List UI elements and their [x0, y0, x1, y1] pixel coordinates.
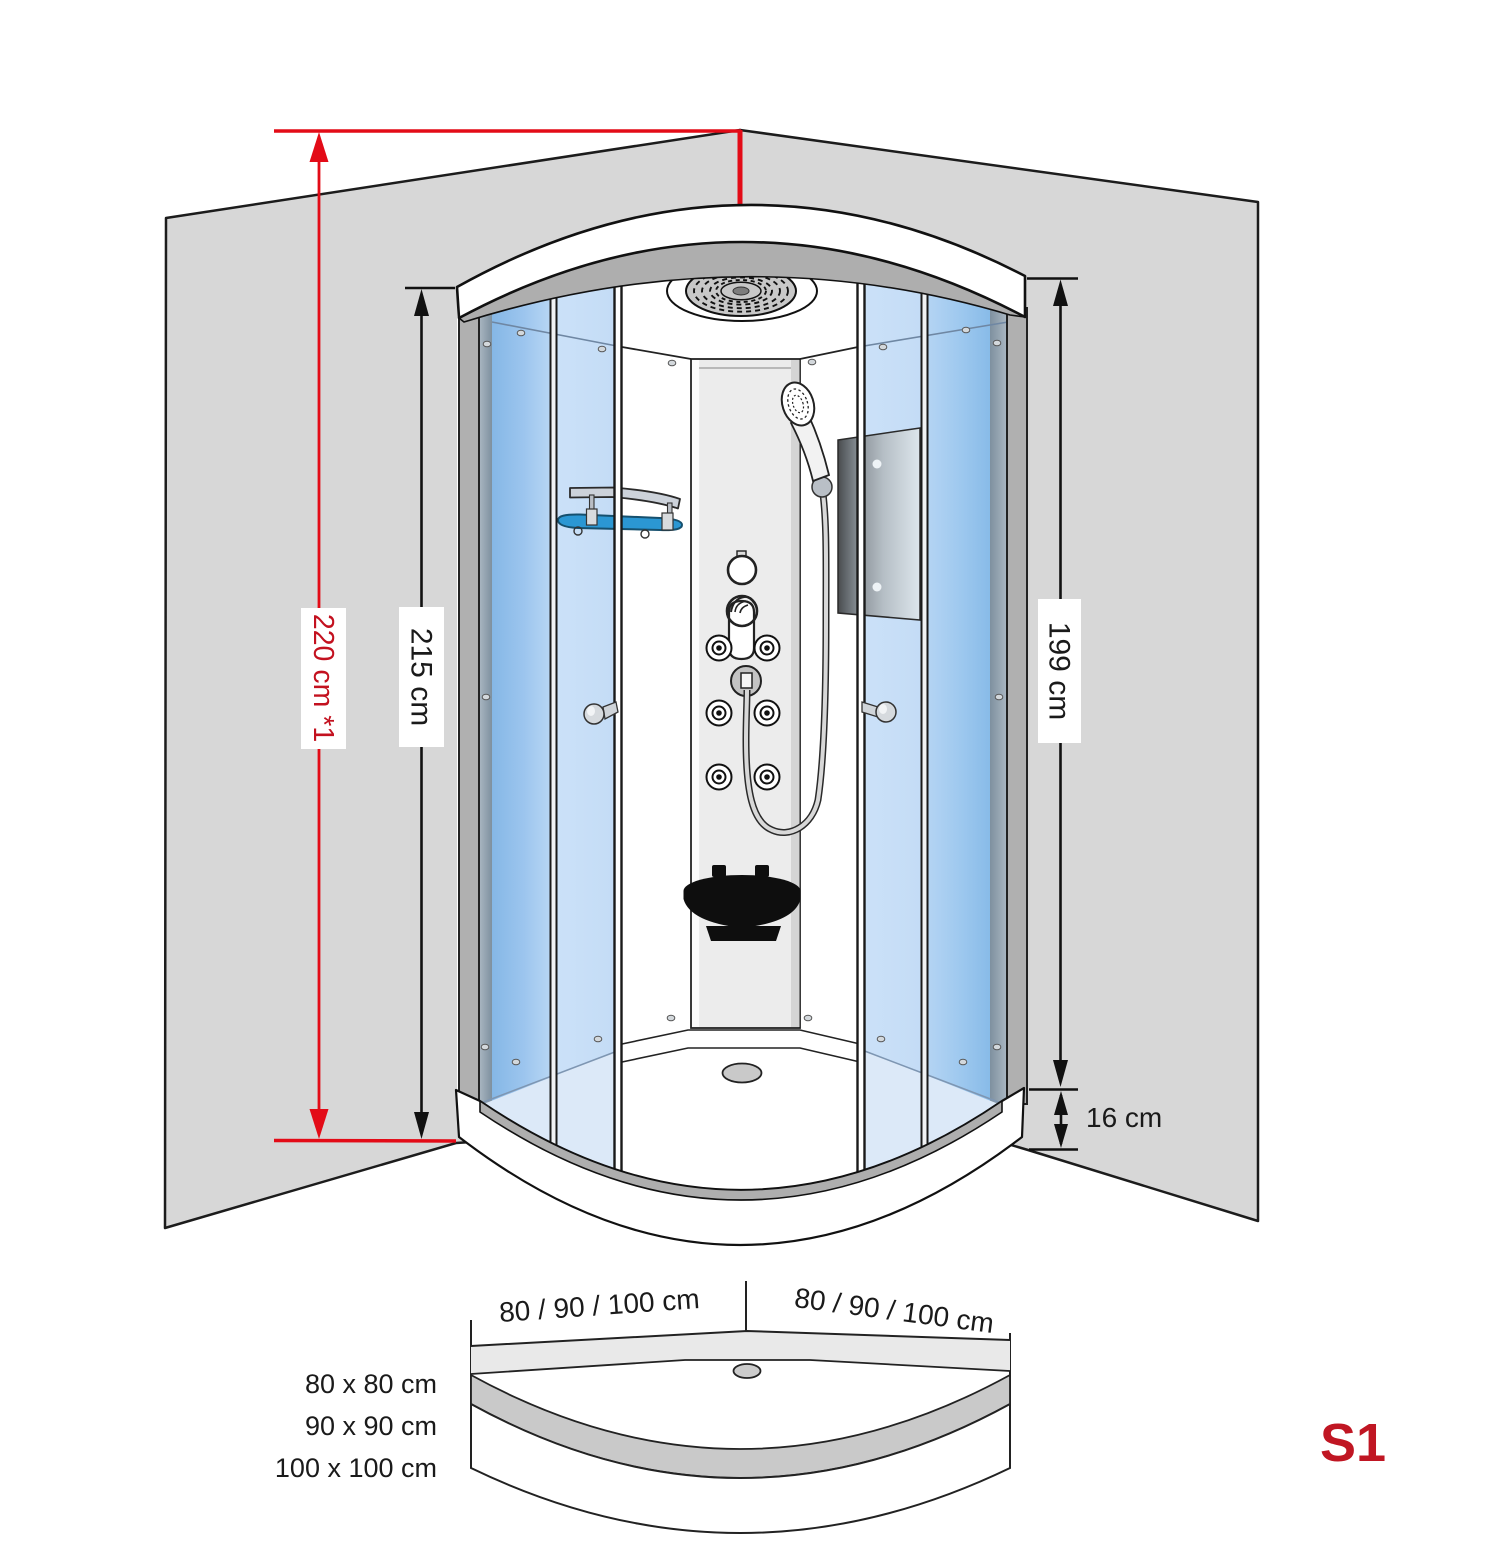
svg-text:80 / 90 / 100 cm: 80 / 90 / 100 cm	[498, 1283, 700, 1328]
svg-text:215 cm: 215 cm	[405, 628, 438, 726]
svg-text:220 cm *1: 220 cm *1	[307, 614, 339, 742]
svg-text:80 x 80 cm: 80 x 80 cm	[305, 1369, 437, 1399]
svg-text:199 cm: 199 cm	[1043, 622, 1076, 720]
svg-text:S1: S1	[1320, 1413, 1386, 1473]
svg-text:90 x 90 cm: 90 x 90 cm	[305, 1411, 437, 1441]
svg-text:100 x 100 cm: 100 x 100 cm	[275, 1453, 437, 1483]
svg-text:80 / 90 / 100 cm: 80 / 90 / 100 cm	[793, 1282, 996, 1339]
svg-text:16 cm: 16 cm	[1086, 1102, 1162, 1133]
